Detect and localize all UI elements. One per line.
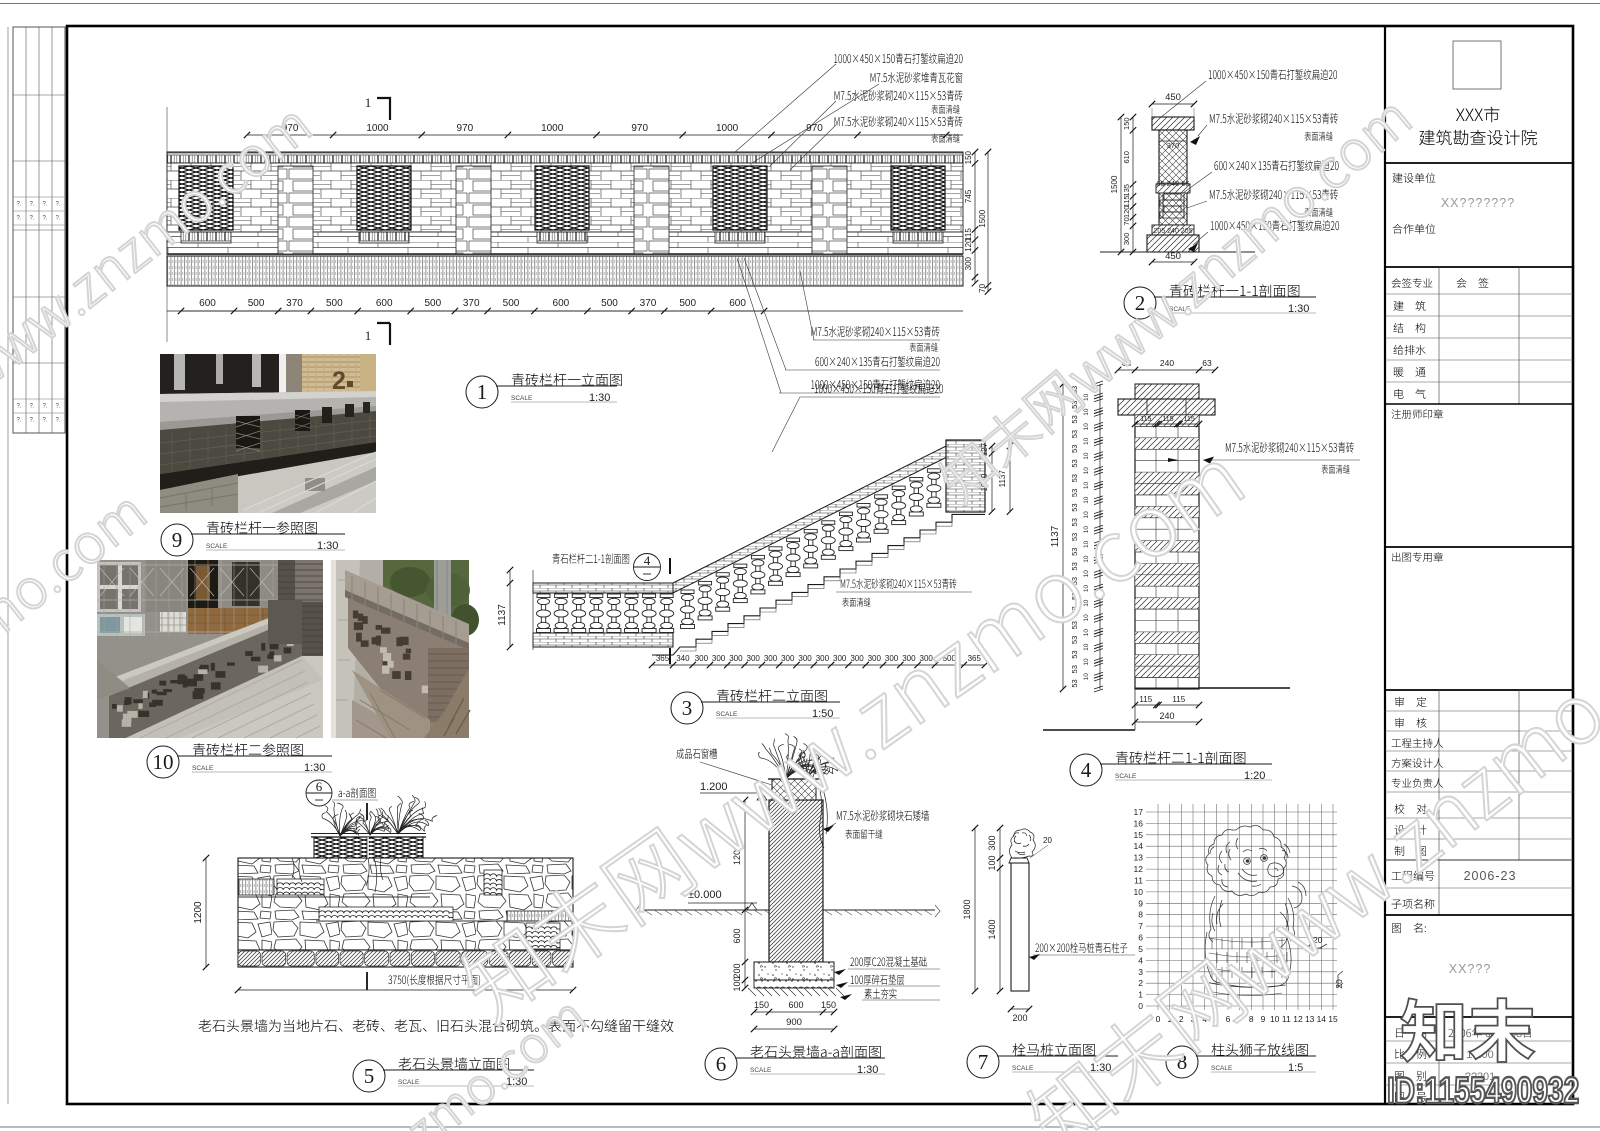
svg-text:115: 115 [1162,416,1173,423]
svg-text:300: 300 [868,654,882,663]
svg-text:14: 14 [1317,1014,1327,1024]
svg-text:370: 370 [286,298,303,309]
svg-text:1:30: 1:30 [317,540,338,552]
svg-text:120: 120 [964,238,973,252]
svg-text:200: 200 [1012,1013,1027,1023]
svg-text:53: 53 [1070,415,1079,423]
svg-text:?.: ?. [55,202,60,208]
svg-text:600: 600 [199,298,216,309]
svg-text:10: 10 [1083,585,1090,593]
svg-text:1500: 1500 [1110,175,1119,193]
svg-text:7: 7 [1138,921,1143,931]
svg-text:?.: ?. [42,216,47,222]
svg-text:1000: 1000 [366,123,389,134]
svg-text:9: 9 [1138,898,1143,908]
svg-text:SCALE: SCALE [206,543,228,550]
svg-text:240: 240 [1159,711,1174,721]
svg-text:53: 53 [1070,562,1079,570]
svg-text:1800: 1800 [962,899,972,919]
svg-text:10: 10 [1083,393,1090,401]
svg-text:53: 53 [1070,636,1079,644]
svg-text:53: 53 [1070,459,1079,467]
svg-text:11: 11 [1134,876,1143,886]
svg-text:600: 600 [729,298,746,309]
svg-text:53: 53 [1070,665,1079,673]
svg-text:70: 70 [1122,217,1131,225]
svg-text:150: 150 [754,1000,769,1010]
svg-text:2: 2 [332,367,346,395]
svg-text:?.: ?. [42,418,47,424]
svg-text:SCALE: SCALE [511,395,533,402]
svg-text:53: 53 [1070,679,1079,687]
svg-text:10: 10 [1083,614,1090,622]
svg-text:17: 17 [1134,807,1144,817]
svg-text:500: 500 [601,298,618,309]
svg-text:500: 500 [326,298,343,309]
svg-text:?.: ?. [42,202,47,208]
svg-text:10: 10 [1083,673,1090,681]
svg-text:10: 10 [1134,887,1144,897]
svg-text:1:30: 1:30 [589,392,610,404]
svg-text:1137: 1137 [1050,525,1061,547]
svg-text:610: 610 [1122,151,1131,164]
svg-text:6: 6 [1138,933,1143,943]
svg-text:13: 13 [1134,853,1144,863]
svg-text:SCALE: SCALE [398,1079,420,1086]
svg-text:300: 300 [798,654,812,663]
svg-text:XX???????: XX??????? [1441,196,1515,210]
svg-text:53: 53 [1070,445,1079,453]
svg-text:9: 9 [1261,1014,1266,1024]
svg-text:SCALE: SCALE [192,765,214,772]
svg-text:970: 970 [631,123,648,134]
svg-text:200: 200 [732,963,742,978]
svg-text:8: 8 [1249,1014,1254,1024]
svg-text:?.: ?. [29,216,34,222]
svg-text:500: 500 [424,298,441,309]
svg-text:10: 10 [1083,555,1090,563]
svg-text:2: 2 [1138,978,1143,988]
svg-text:300: 300 [764,654,778,663]
svg-text:135: 135 [1122,184,1131,197]
svg-text:115: 115 [1139,695,1152,704]
svg-text:10: 10 [1083,452,1090,460]
svg-text:10: 10 [1083,423,1090,431]
svg-text:370: 370 [1167,141,1180,150]
svg-text:300: 300 [729,654,743,663]
svg-text:63: 63 [1202,358,1212,368]
svg-text:1:30: 1:30 [857,1064,878,1076]
svg-text:10: 10 [1083,467,1090,475]
svg-text:115: 115 [1184,416,1195,423]
svg-text:1: 1 [365,328,372,343]
svg-text:53: 53 [1070,518,1079,526]
svg-text:10: 10 [1083,496,1090,504]
svg-text:1:30: 1:30 [304,762,325,774]
svg-text:1:20: 1:20 [1244,770,1265,782]
svg-text:2006-23: 2006-23 [1464,869,1517,883]
svg-text:300: 300 [1122,233,1131,246]
svg-text:370: 370 [463,298,480,309]
svg-text:53: 53 [1070,548,1079,556]
svg-text:300: 300 [902,654,916,663]
svg-text:10: 10 [1083,658,1090,666]
svg-text:300: 300 [850,654,864,663]
svg-text:SCALE: SCALE [750,1067,772,1074]
svg-text:9: 9 [172,528,183,552]
svg-text:14: 14 [1134,841,1144,851]
svg-text:10: 10 [1083,629,1090,637]
svg-text:?.: ?. [55,216,60,222]
svg-text:?.: ?. [16,418,21,424]
svg-text:300: 300 [816,654,830,663]
svg-text:12: 12 [1134,864,1144,874]
svg-text:8: 8 [1138,910,1143,920]
svg-text:53: 53 [1070,489,1079,497]
svg-text:13: 13 [1305,1014,1315,1024]
svg-text:10: 10 [1083,437,1090,445]
svg-text:?.: ?. [16,202,21,208]
svg-text:500: 500 [248,298,265,309]
svg-text:53: 53 [1070,430,1079,438]
svg-text:240: 240 [1160,358,1174,368]
svg-text:10: 10 [1083,408,1090,416]
svg-text:53: 53 [1070,474,1079,482]
svg-text:900: 900 [786,1017,802,1028]
svg-text:10: 10 [1083,643,1090,651]
svg-text:370: 370 [640,298,657,309]
svg-text:4: 4 [1081,758,1092,782]
svg-text:1137: 1137 [497,604,508,626]
svg-text:53: 53 [1070,533,1079,541]
svg-text:1000: 1000 [541,123,564,134]
svg-text:500: 500 [679,298,696,309]
svg-text:6: 6 [316,779,323,794]
svg-text:745: 745 [964,189,973,203]
svg-text:300: 300 [781,654,795,663]
svg-text:1400: 1400 [987,919,997,939]
svg-text:SCALE: SCALE [1012,1065,1034,1072]
svg-text:53: 53 [1070,621,1079,629]
svg-text:2: 2 [1135,291,1146,315]
svg-text:600: 600 [553,298,570,309]
svg-text:1500: 1500 [978,209,987,227]
svg-text:1: 1 [365,95,372,110]
svg-text:?.: ?. [29,404,34,410]
svg-text:300: 300 [964,256,973,270]
svg-text:65 240 65: 65 240 65 [1156,179,1189,188]
svg-text:10: 10 [1083,540,1090,548]
svg-text:970: 970 [457,123,474,134]
svg-text:970: 970 [806,123,823,134]
svg-text:53: 53 [1070,503,1079,511]
svg-text:0: 0 [1138,1001,1143,1011]
svg-text:0: 0 [1156,1014,1161,1024]
svg-text:150: 150 [821,1000,836,1010]
svg-text:450: 450 [1165,92,1181,103]
svg-text:4: 4 [1138,955,1143,965]
svg-text:16: 16 [1134,818,1144,828]
svg-text:SCALE: SCALE [1115,773,1137,780]
svg-text:1.200: 1.200 [700,781,728,793]
svg-text:1137: 1137 [998,470,1007,488]
svg-text:150: 150 [964,150,973,164]
svg-text:120: 120 [1122,206,1131,219]
svg-text:15: 15 [1134,830,1144,840]
svg-text:1200: 1200 [193,901,204,924]
svg-text:300: 300 [833,654,847,663]
svg-text:300: 300 [987,835,997,850]
svg-text:115: 115 [1172,695,1185,704]
svg-text:1:50: 1:50 [812,708,833,720]
svg-text:10: 10 [1083,570,1090,578]
svg-text:20: 20 [1043,836,1052,845]
svg-text:340: 340 [676,654,690,663]
svg-text:5: 5 [364,1064,375,1088]
svg-text:10: 10 [1270,1014,1280,1024]
svg-text:10: 10 [1083,599,1090,607]
svg-text:?.: ?. [29,202,34,208]
svg-text:300: 300 [920,654,934,663]
svg-text:600: 600 [376,298,393,309]
svg-text:3: 3 [1138,967,1143,977]
svg-text:1:5: 1:5 [1288,1062,1303,1074]
svg-text:205 240 205: 205 240 205 [1154,228,1193,235]
svg-text:?.: ?. [16,404,21,410]
svg-text:?.: ?. [16,216,21,222]
svg-text:600: 600 [788,1000,803,1010]
svg-text:150: 150 [1122,117,1131,130]
svg-text:100: 100 [987,855,997,870]
svg-text:ID:1155490932: ID:1155490932 [1387,1069,1579,1111]
svg-text:10: 10 [1083,526,1090,534]
svg-text:300: 300 [747,654,761,663]
svg-text:1:30: 1:30 [1288,303,1309,315]
svg-text:2: 2 [1179,1014,1184,1024]
svg-text:100: 100 [732,976,742,991]
svg-text:500: 500 [503,298,520,309]
svg-text:365: 365 [656,654,670,663]
svg-text:?.: ?. [29,418,34,424]
svg-text:10: 10 [153,750,174,774]
svg-text:10: 10 [1083,511,1090,519]
svg-text:15: 15 [1328,1014,1338,1024]
svg-text:6: 6 [1226,1014,1231,1024]
svg-text:7: 7 [978,1050,989,1074]
svg-text:365: 365 [968,654,982,663]
svg-text:XX???: XX??? [1449,962,1492,976]
svg-text:6: 6 [716,1052,727,1076]
svg-text:450: 450 [1165,251,1181,262]
svg-text:300: 300 [885,654,899,663]
svg-text:300: 300 [695,654,709,663]
svg-text:600: 600 [732,928,742,943]
svg-text:SCALE: SCALE [1211,1065,1233,1072]
svg-text:12: 12 [1293,1014,1303,1024]
svg-text:10: 10 [1083,482,1090,490]
svg-text:70: 70 [978,283,987,292]
svg-text:11: 11 [1282,1014,1291,1024]
svg-text:115: 115 [1140,416,1151,423]
svg-text:1:30: 1:30 [1090,1062,1111,1074]
svg-text:SCALE: SCALE [716,711,738,718]
svg-text:53: 53 [1070,650,1079,658]
svg-text:?.: ?. [55,404,60,410]
svg-text:?.: ?. [55,418,60,424]
svg-text:1: 1 [1138,990,1143,1000]
svg-text:300: 300 [712,654,726,663]
svg-text:3: 3 [682,696,693,720]
svg-text:1: 1 [477,380,488,404]
svg-text:?.: ?. [42,404,47,410]
svg-text:1000: 1000 [716,123,739,134]
svg-text:4: 4 [644,553,651,568]
svg-text:5: 5 [1138,944,1143,954]
